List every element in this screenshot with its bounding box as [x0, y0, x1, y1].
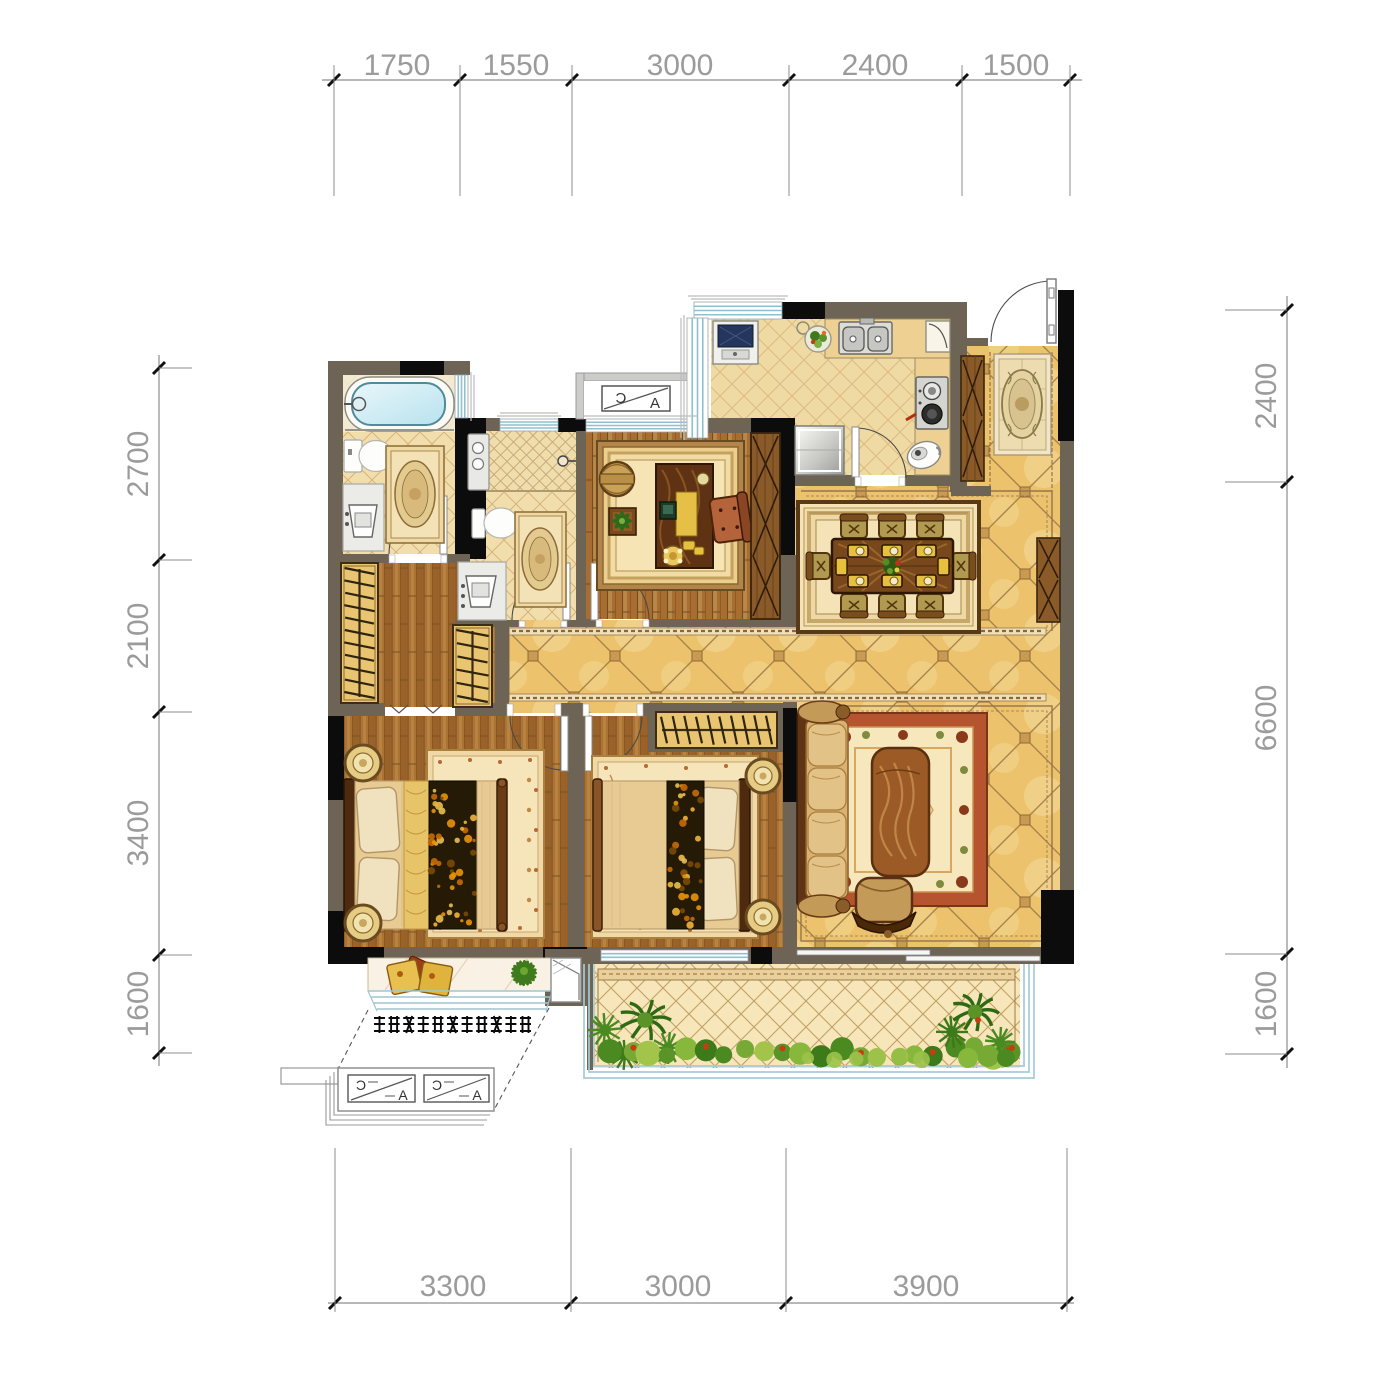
svg-text:1550: 1550 — [483, 49, 550, 82]
svg-text:1600: 1600 — [1250, 971, 1283, 1038]
svg-text:A: A — [650, 395, 660, 412]
svg-text:2400: 2400 — [1250, 363, 1283, 430]
svg-text:1600: 1600 — [122, 971, 155, 1038]
svg-text:C: C — [615, 390, 626, 407]
svg-text:C: C — [432, 1077, 442, 1093]
svg-text:3900: 3900 — [893, 1270, 960, 1303]
svg-text:A: A — [398, 1087, 408, 1103]
svg-text:A: A — [472, 1087, 482, 1103]
svg-text:1750: 1750 — [364, 49, 431, 82]
svg-text:C: C — [356, 1077, 366, 1093]
svg-text:3400: 3400 — [122, 800, 155, 867]
svg-text:3300: 3300 — [420, 1270, 487, 1303]
svg-text:2700: 2700 — [122, 431, 155, 498]
svg-text:3000: 3000 — [645, 1270, 712, 1303]
svg-text:2100: 2100 — [122, 603, 155, 670]
svg-text:6600: 6600 — [1250, 685, 1283, 752]
svg-text:1500: 1500 — [983, 49, 1050, 82]
svg-text:3000: 3000 — [647, 49, 714, 82]
svg-text:2400: 2400 — [842, 49, 909, 82]
